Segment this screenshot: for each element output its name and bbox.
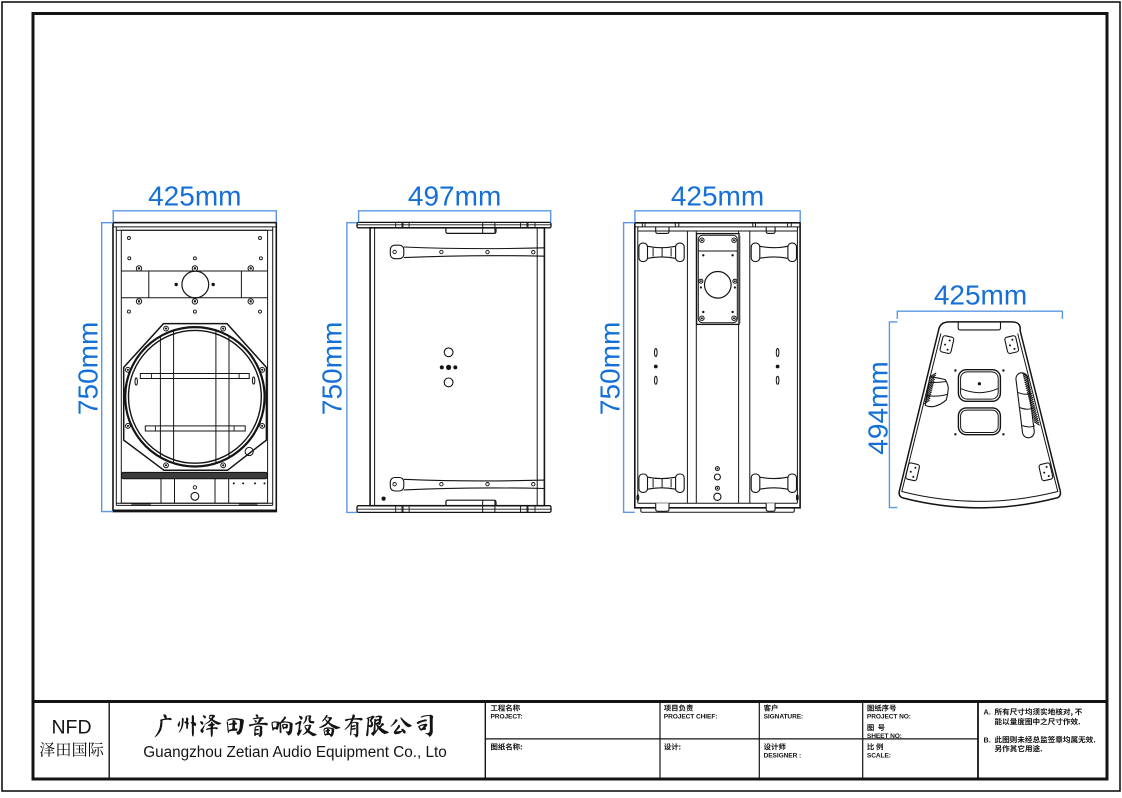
svg-text:PROJECT:: PROJECT: [491, 714, 523, 721]
svg-text:A.: A. [984, 708, 991, 717]
svg-text:425mm: 425mm [148, 181, 241, 212]
svg-text:425mm: 425mm [934, 280, 1027, 311]
svg-text:Guangzhou Zetian Audio Equipme: Guangzhou Zetian Audio Equipment Co., Lt… [143, 744, 447, 761]
svg-text:NFD: NFD [51, 717, 91, 739]
svg-text:SIGNATURE:: SIGNATURE: [764, 714, 804, 721]
svg-text:PROJECT NO:: PROJECT NO: [867, 714, 911, 721]
svg-text:497mm: 497mm [408, 181, 501, 212]
svg-text:SCALE:: SCALE: [867, 752, 891, 759]
svg-text:750mm: 750mm [594, 322, 625, 415]
svg-text:425mm: 425mm [671, 181, 764, 212]
svg-text:DESIGNER :: DESIGNER : [764, 752, 801, 759]
svg-text:SHEET NO:: SHEET NO: [867, 733, 902, 740]
svg-text:PROJECT CHIEF:: PROJECT CHIEF: [664, 714, 718, 721]
svg-text:494mm: 494mm [863, 361, 894, 454]
svg-text:750mm: 750mm [72, 322, 103, 415]
svg-text:B.: B. [984, 735, 991, 744]
svg-text:750mm: 750mm [317, 322, 348, 415]
